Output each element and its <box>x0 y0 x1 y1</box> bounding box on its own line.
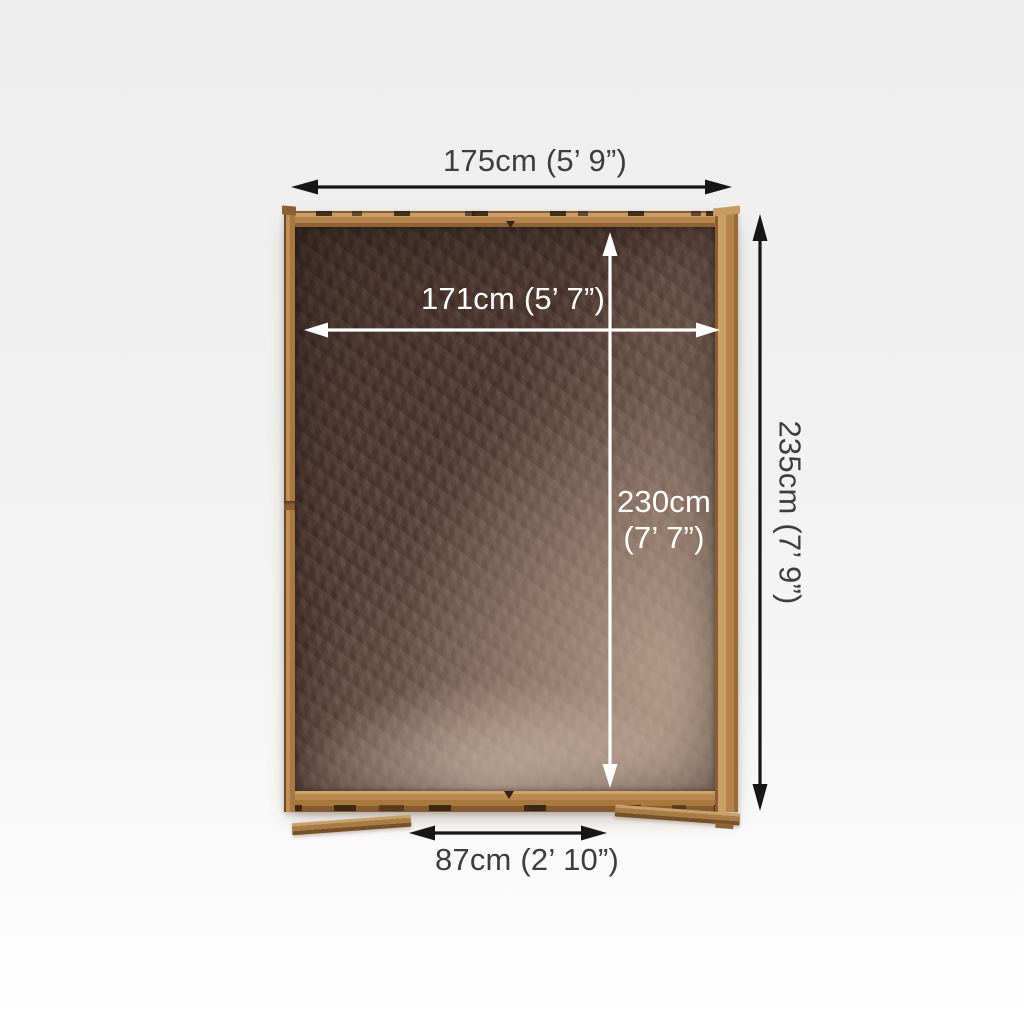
top-wall-board-gaps <box>292 211 730 216</box>
door-width-arrow <box>409 826 607 841</box>
internal-width-label: 171cm (5’ 7”) <box>363 281 663 317</box>
external-width-label: 175cm (5’ 9”) <box>385 143 685 179</box>
external-width-arrow <box>291 180 732 195</box>
product-dimension-diagram: 175cm (5’ 9”) 235cm (7’ 9”) 171cm (5’ 7”… <box>0 0 1024 1024</box>
internal-depth-imperial: (7’ 7”) <box>596 520 732 556</box>
internal-depth-value: 230cm <box>596 484 732 520</box>
top-left-corner-cap <box>282 205 296 215</box>
front-batten-left <box>292 815 412 836</box>
external-depth-arrow <box>753 214 768 811</box>
bottom-wall-notch <box>504 791 514 799</box>
shed-wall-top <box>284 211 738 227</box>
top-wall-notch <box>506 221 515 228</box>
shed-wall-left <box>284 211 295 812</box>
external-depth-label: 235cm (7’ 9”) <box>771 363 808 663</box>
left-wall-joint <box>284 501 295 510</box>
door-width-label: 87cm (2’ 10”) <box>377 842 677 878</box>
internal-depth-label: 230cm (7’ 7”) <box>596 484 732 556</box>
